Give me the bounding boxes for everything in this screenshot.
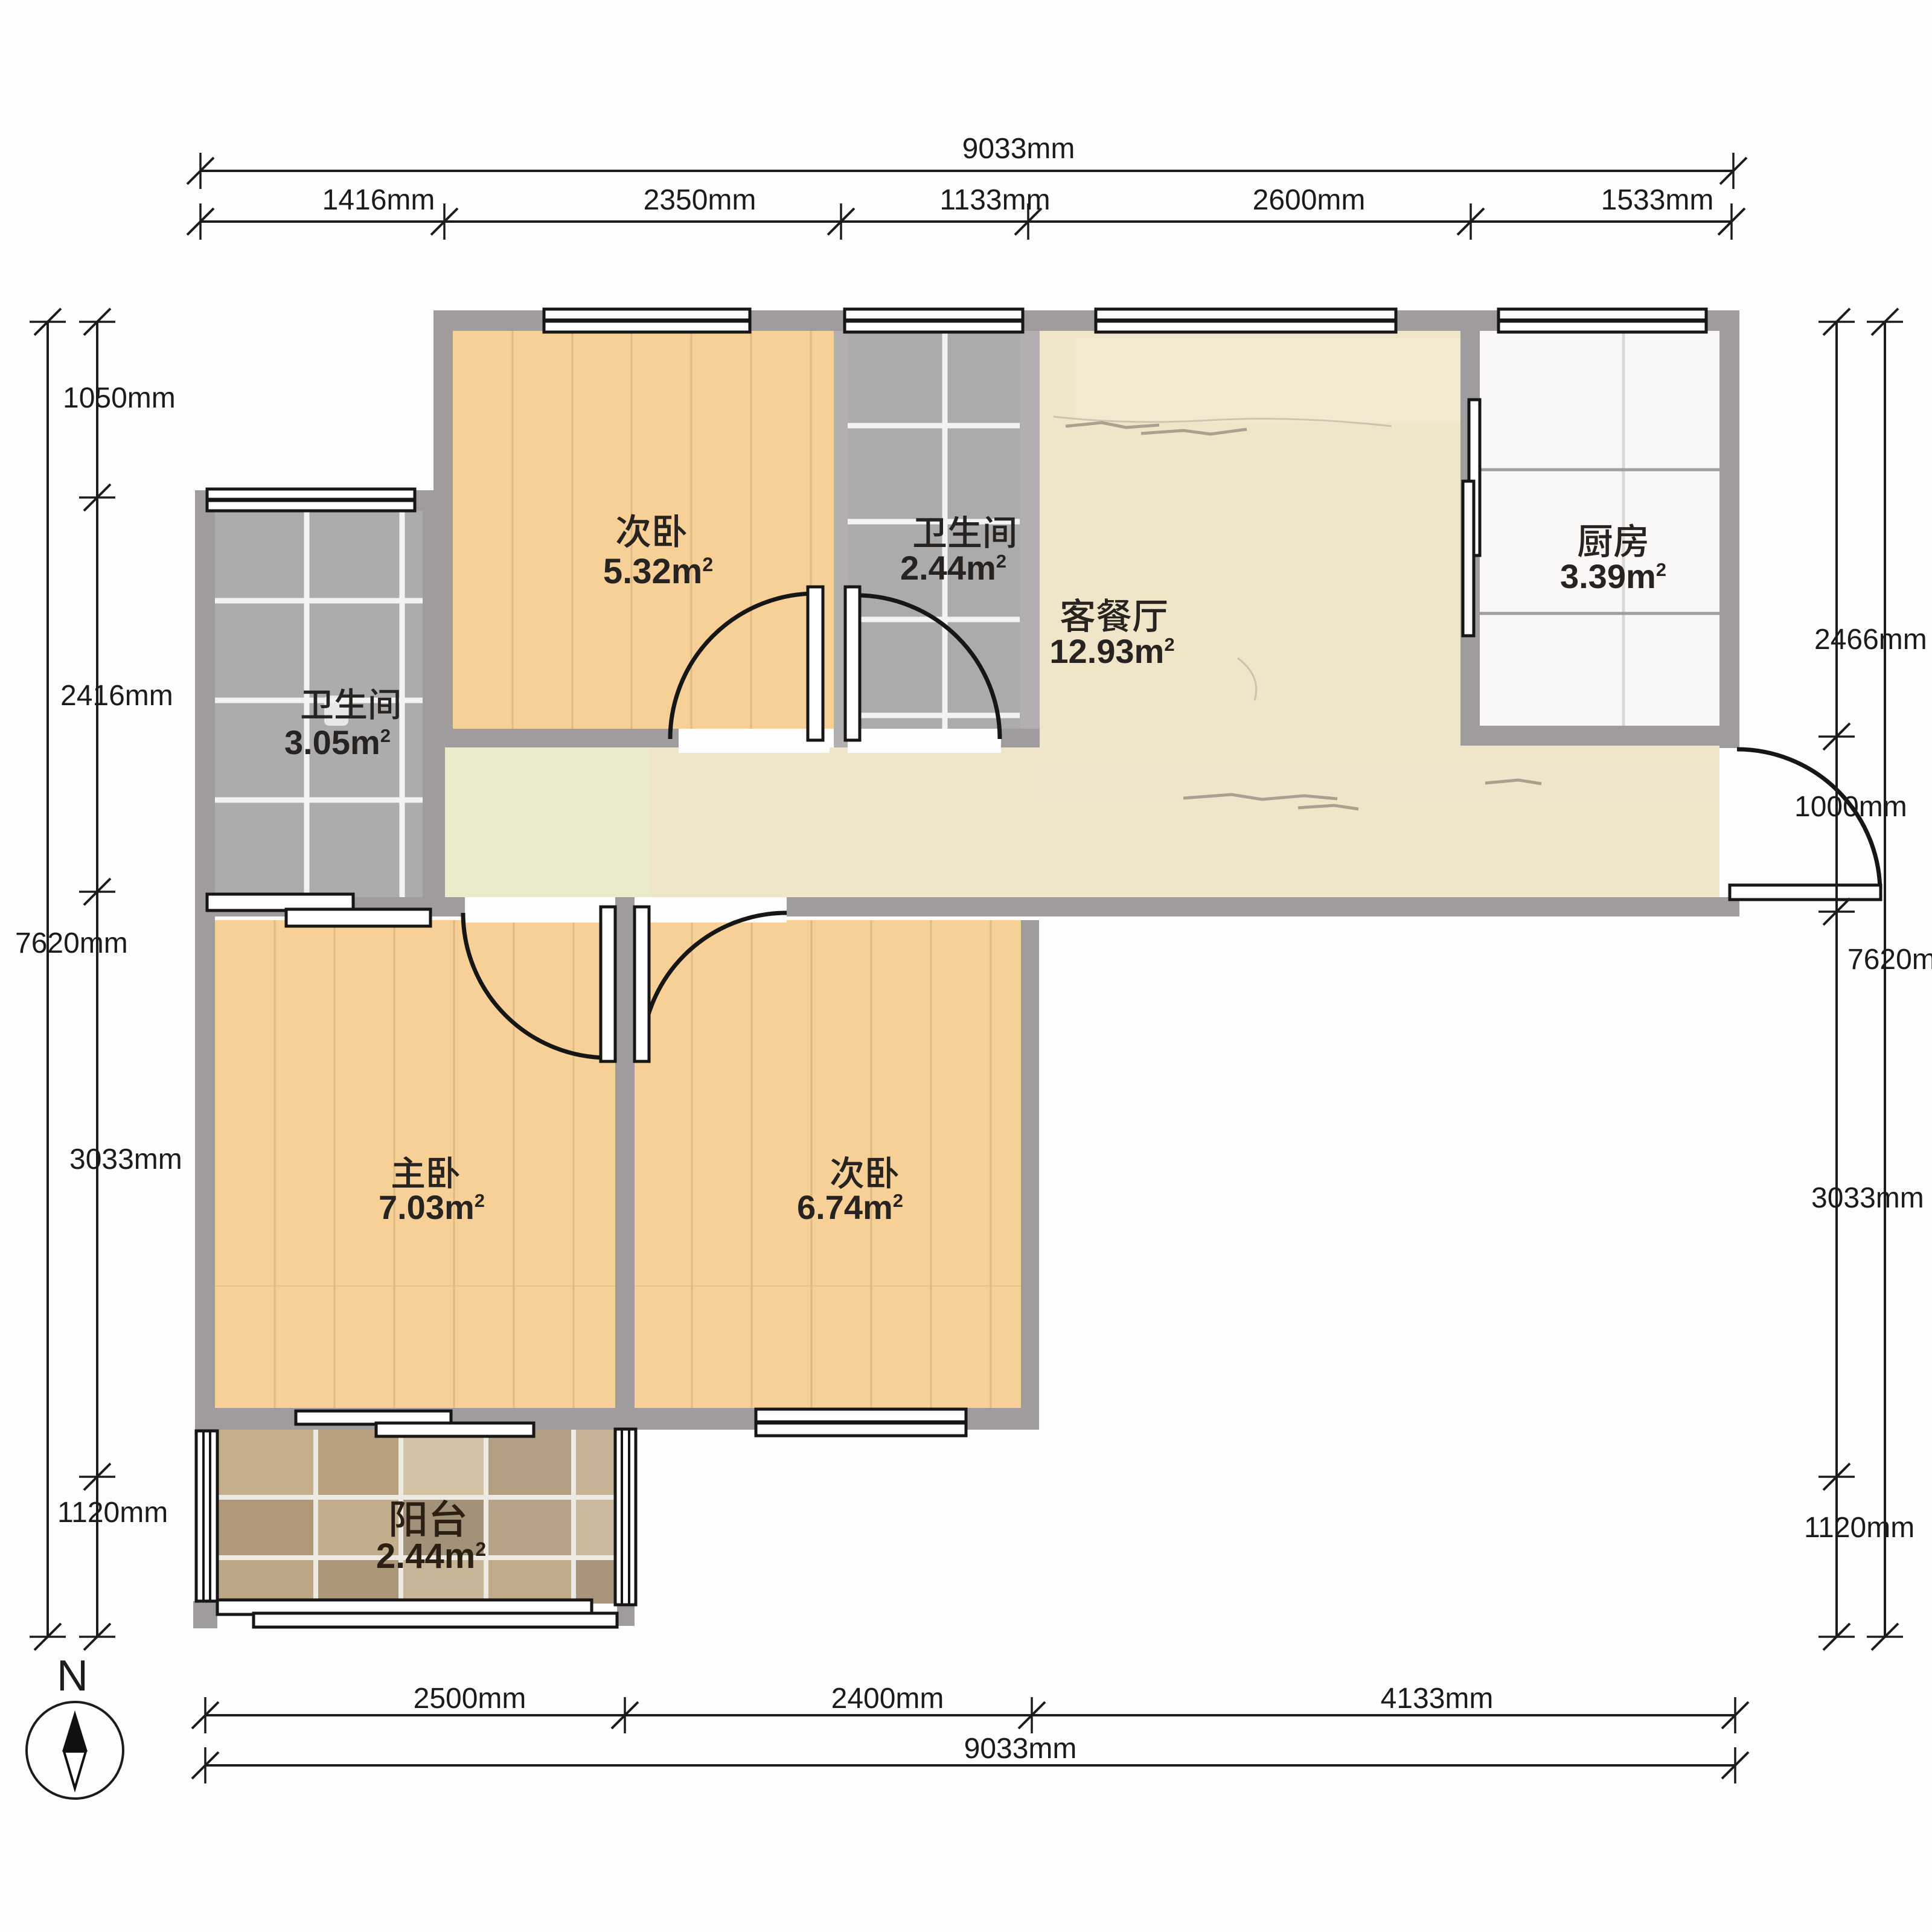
svg-text:1000mm: 1000mm xyxy=(1794,791,1907,823)
svg-text:4133mm: 4133mm xyxy=(1381,1683,1494,1715)
svg-text:7.03m2: 7.03m2 xyxy=(379,1188,485,1226)
svg-text:N: N xyxy=(57,1652,88,1700)
svg-text:2.44m2: 2.44m2 xyxy=(900,549,1006,587)
svg-text:1120mm: 1120mm xyxy=(1804,1512,1914,1544)
svg-text:6.74m2: 6.74m2 xyxy=(797,1188,903,1226)
svg-text:2416mm: 2416mm xyxy=(60,680,173,712)
svg-text:1133mm: 1133mm xyxy=(939,184,1050,216)
svg-text:3.05m2: 3.05m2 xyxy=(284,723,391,761)
svg-text:1416mm: 1416mm xyxy=(322,184,435,216)
svg-text:2350mm: 2350mm xyxy=(644,184,756,216)
svg-text:3033mm: 3033mm xyxy=(69,1144,182,1176)
svg-text:2.44m2: 2.44m2 xyxy=(376,1537,486,1576)
svg-text:3.39m2: 3.39m2 xyxy=(1560,557,1666,595)
svg-text:5.32m2: 5.32m2 xyxy=(603,552,713,591)
svg-text:3033mm: 3033mm xyxy=(1811,1182,1924,1214)
svg-text:1533mm: 1533mm xyxy=(1601,184,1714,216)
svg-text:9033mm: 9033mm xyxy=(964,1733,1077,1765)
svg-text:7620mm: 7620mm xyxy=(15,927,128,959)
svg-text:2500mm: 2500mm xyxy=(414,1683,526,1715)
svg-text:7620mm: 7620mm xyxy=(1847,944,1932,976)
svg-text:2400mm: 2400mm xyxy=(831,1683,944,1715)
svg-text:1120mm: 1120mm xyxy=(57,1497,168,1529)
svg-text:12.93m2: 12.93m2 xyxy=(1049,632,1174,670)
svg-text:1050mm: 1050mm xyxy=(63,382,176,414)
svg-text:2600mm: 2600mm xyxy=(1253,184,1366,216)
svg-text:9033mm: 9033mm xyxy=(962,133,1075,165)
svg-text:2466mm: 2466mm xyxy=(1814,624,1927,656)
